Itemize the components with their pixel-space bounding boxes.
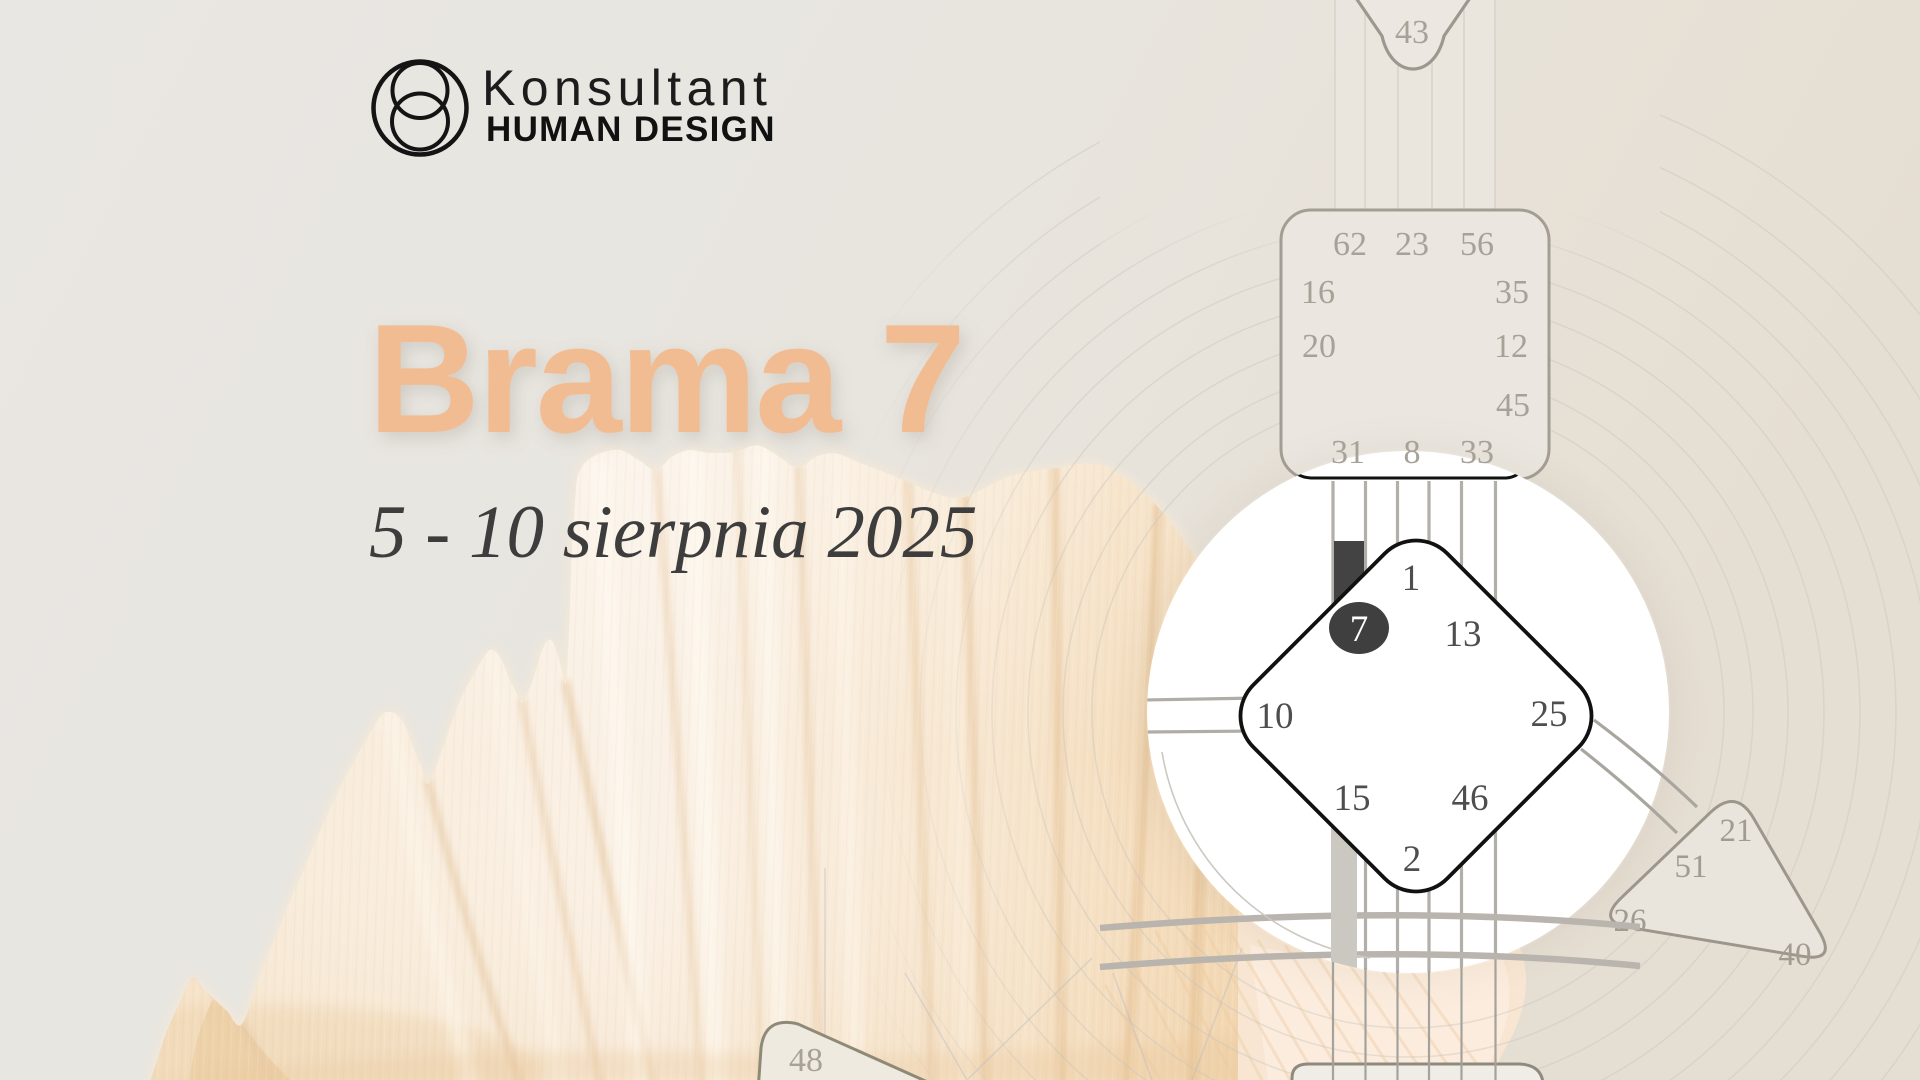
svg-text:2: 2 (1403, 839, 1422, 880)
svg-text:21: 21 (1720, 813, 1753, 849)
svg-text:1: 1 (1402, 558, 1421, 599)
svg-text:62: 62 (1333, 226, 1367, 263)
svg-text:46: 46 (1452, 778, 1489, 819)
svg-text:33: 33 (1460, 434, 1494, 471)
svg-text:31: 31 (1331, 434, 1365, 471)
svg-text:51: 51 (1675, 849, 1708, 885)
svg-text:48: 48 (789, 1042, 823, 1079)
svg-text:43: 43 (1395, 14, 1429, 51)
svg-text:56: 56 (1460, 226, 1494, 263)
svg-text:45: 45 (1496, 387, 1530, 424)
svg-text:20: 20 (1302, 328, 1336, 365)
svg-text:15: 15 (1334, 778, 1371, 819)
svg-text:Konsultant: Konsultant (482, 60, 772, 116)
svg-text:7: 7 (1350, 609, 1369, 650)
svg-text:25: 25 (1531, 694, 1568, 735)
svg-text:10: 10 (1257, 696, 1294, 737)
svg-text:5 - 10 sierpnia 2025: 5 - 10 sierpnia 2025 (369, 491, 977, 574)
svg-text:35: 35 (1495, 274, 1529, 311)
svg-text:23: 23 (1395, 226, 1429, 263)
svg-text:Brama 7: Brama 7 (368, 292, 964, 465)
svg-text:8: 8 (1404, 434, 1421, 471)
svg-text:26: 26 (1614, 903, 1647, 939)
svg-text:13: 13 (1445, 614, 1482, 655)
svg-text:16: 16 (1301, 274, 1335, 311)
svg-text:HUMAN DESIGN: HUMAN DESIGN (486, 110, 776, 149)
svg-text:12: 12 (1494, 328, 1528, 365)
svg-text:40: 40 (1779, 937, 1812, 973)
